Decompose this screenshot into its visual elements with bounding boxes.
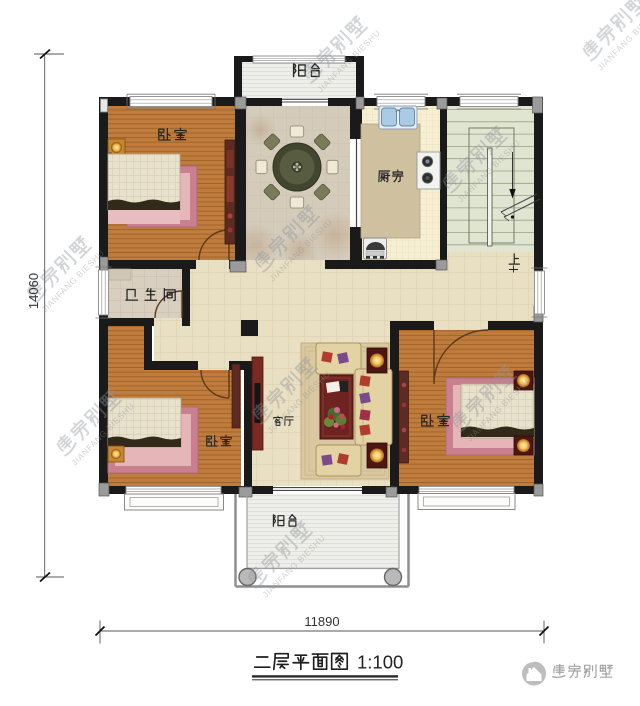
svg-text:11890: 11890 xyxy=(304,614,339,629)
svg-text:1:100: 1:100 xyxy=(357,652,403,673)
svg-text:14060: 14060 xyxy=(26,273,41,309)
